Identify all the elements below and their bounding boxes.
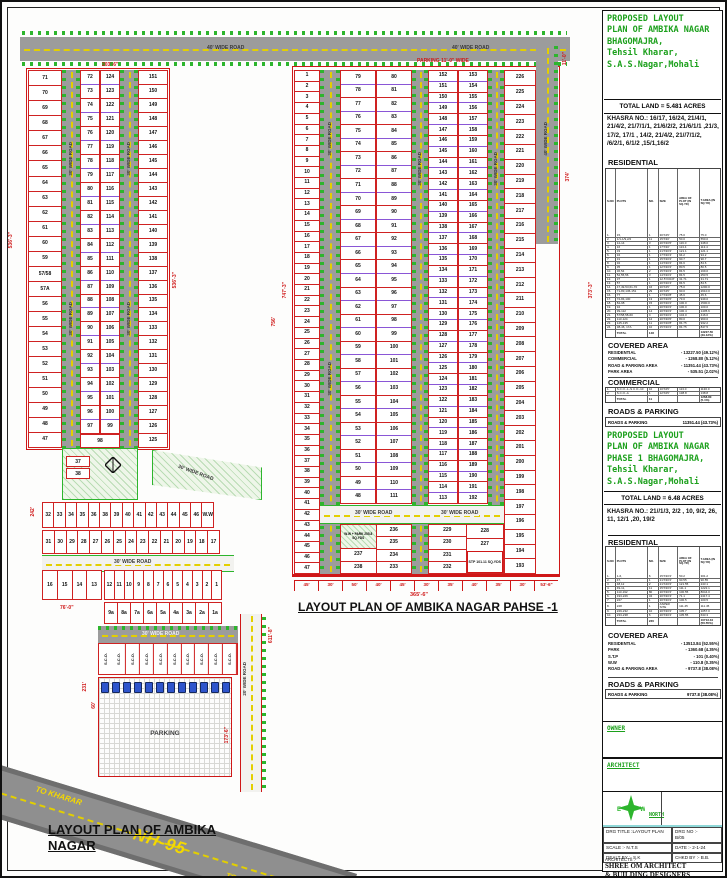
- plot-cell: 70: [29, 85, 61, 100]
- plot-cell: 214: [505, 248, 535, 263]
- plot-cell: 39: [295, 477, 319, 488]
- plot-cell: 147: [429, 124, 457, 135]
- plot-cell: 232: [429, 561, 466, 573]
- plot-cell: 28: [295, 359, 319, 370]
- phase1-bottom-line: [292, 574, 560, 577]
- plot-cell: 50: [29, 387, 61, 402]
- car-icon: [156, 682, 164, 693]
- tree-row: [488, 70, 492, 574]
- plot-cell: 187: [459, 438, 487, 449]
- plot-cell: 130: [139, 363, 167, 377]
- plot-cell: 103: [377, 381, 411, 395]
- plot-cell: 208: [505, 336, 535, 351]
- plot-cell: 136: [139, 280, 167, 294]
- tick-label: 40': [366, 581, 390, 591]
- plot-cell: 118: [429, 438, 457, 449]
- plot-cell: 196: [505, 514, 535, 529]
- dim-374: 374': [565, 172, 571, 182]
- plot-cell: 162: [459, 167, 487, 178]
- plot-cell: 98: [81, 435, 119, 447]
- dim-11: 11'-0": [562, 52, 568, 65]
- road-centerline: [420, 72, 422, 572]
- plot-cell: 63: [341, 287, 375, 301]
- plot-cell: 140: [429, 200, 457, 211]
- plot-cell: 17: [207, 531, 219, 553]
- plot-cell: 48: [29, 417, 61, 432]
- plot-cell: 3a: [182, 603, 195, 623]
- plot-row-17-31: 313029282726252423222120191817: [42, 530, 220, 554]
- plot-cell: 218: [505, 188, 535, 203]
- plot-cell: 71: [341, 178, 375, 192]
- plot-cell: 145: [429, 146, 457, 157]
- plot-cell: 122: [101, 98, 119, 112]
- plot-cell: 220: [505, 159, 535, 174]
- plot-cell: 34: [295, 423, 319, 434]
- road-label-40: 40' WIDE ROAD: [543, 122, 548, 156]
- plot-cell: 114: [429, 481, 457, 492]
- table-total-row: TOTAL111268.80 (5.1%): [606, 395, 720, 402]
- plot-cell: 5: [295, 113, 319, 124]
- plot-cell: 1: [295, 71, 319, 81]
- plot-cell: 83: [377, 111, 411, 125]
- plot-cell: 163: [459, 178, 487, 189]
- car-icon: [112, 682, 120, 693]
- plot-cell: 91: [81, 335, 99, 349]
- plot-cell: 236: [377, 525, 412, 536]
- plot-cell: 16: [43, 571, 57, 599]
- plot-cell: 72: [341, 165, 375, 179]
- plot-cell: 186: [459, 427, 487, 438]
- plot-cell: 123: [429, 384, 457, 395]
- plot-cell: 81: [377, 84, 411, 98]
- sco-cell: S.C.O.: [140, 644, 154, 674]
- plot-cell: 71: [29, 71, 61, 85]
- plot-cell: 124: [429, 373, 457, 384]
- dim-173: 173'-6": [224, 727, 230, 743]
- tick-label: 50': [342, 581, 366, 591]
- plot-cell: 57/58: [29, 266, 61, 281]
- car-icon: [189, 682, 197, 693]
- plot-cell: 137: [429, 232, 457, 243]
- project-title-1: PROPOSED LAYOUT PLAN OF AMBIKA NAGAR BHA…: [607, 14, 721, 71]
- plot-strip-col1: 7170696867666564636261605957/5857A565554…: [28, 70, 62, 448]
- plot-cell: 99: [377, 327, 411, 341]
- commercial-heading: COMMERCIAL: [608, 377, 718, 387]
- plot-cell: 49: [341, 476, 375, 490]
- plot-cell: 54: [341, 408, 375, 422]
- plot-cell: 90: [377, 205, 411, 219]
- plot-cell: 184: [459, 406, 487, 417]
- plot-cell: 18: [295, 252, 319, 263]
- plot-cell: 13: [295, 198, 319, 209]
- plot-cell: 148: [429, 113, 457, 124]
- plot-cell: 139: [429, 211, 457, 222]
- plot-cell: 100: [377, 341, 411, 355]
- plot-cell: 132: [139, 335, 167, 349]
- tree-row: [22, 31, 567, 35]
- plot-cell: 6: [295, 124, 319, 135]
- road-label-40: 40' WIDE ROAD: [452, 45, 489, 51]
- plot-cell: 174: [459, 297, 487, 308]
- tick-label: 40': [462, 581, 486, 591]
- plot-cell: 45: [295, 541, 319, 552]
- residential-table-2: S.NOPLOTSNO.SIZEAREA OF PLOT (IN SQ.YD)T…: [605, 546, 721, 626]
- plot-cell: 129: [429, 319, 457, 330]
- plot-cell: 115: [101, 196, 119, 210]
- drg-no: DRG NO :- B/05: [672, 827, 722, 843]
- subblock-right-col2: 228 227 STP 101.11 SQ.YDS: [467, 525, 504, 573]
- plot-cell: 55: [29, 311, 61, 326]
- plot-cell: 23: [136, 531, 148, 553]
- plot-cell: 203: [505, 410, 535, 425]
- plot-cell: 86: [81, 266, 99, 280]
- dim-231: 231': [82, 682, 88, 692]
- plot-cell: 4: [295, 102, 319, 113]
- tree-row: [320, 70, 324, 574]
- tick-label: 30': [510, 581, 534, 591]
- plot-cell: 158: [459, 124, 487, 135]
- plot-cell: 79: [81, 168, 99, 182]
- plot-cell: 73: [81, 84, 99, 98]
- plot-cell: 180: [459, 362, 487, 373]
- plot-cell: 229: [429, 525, 466, 536]
- tick-label: 35': [438, 581, 462, 591]
- park-plot-37: 37: [66, 456, 90, 467]
- plot-cell: 128: [139, 391, 167, 405]
- plot-cell: 127: [429, 341, 457, 352]
- roads-parking-row-2: ROADS & PARKING 9737.8 (38.08%): [605, 689, 721, 699]
- plot-cell: 170: [459, 254, 487, 265]
- dim-76: 76'-0": [60, 605, 74, 611]
- sco-cell: S.C.O.: [154, 644, 168, 674]
- plot-cell: 34: [65, 503, 76, 527]
- plot-cell: 231: [429, 549, 466, 561]
- tree-row: [62, 70, 66, 448]
- plot-cell: 24: [295, 316, 319, 327]
- plot-cell: 36: [88, 503, 99, 527]
- plot-strip-b-left: 7978777675747372717069686766656463626160…: [340, 70, 376, 504]
- plot-cell: 10: [295, 166, 319, 177]
- road-label-30: 30' WIDE ROAD: [354, 510, 393, 516]
- scale: SCALE :- N.T.S: [603, 843, 672, 853]
- plot-cell: 115: [429, 471, 457, 482]
- plot-cell: 105: [377, 408, 411, 422]
- roads-parking-label: ROADS & PARKING: [608, 420, 647, 425]
- plot-cell: 141: [429, 189, 457, 200]
- plot-cell: 107: [101, 307, 119, 321]
- plot-cell: 29: [66, 531, 78, 553]
- subblock-left: W.W + PARK 255.8 SQ.YDS 237 238 23623523…: [340, 524, 412, 574]
- plot-cell: 110: [101, 266, 119, 280]
- plot-cell: 11: [295, 177, 319, 188]
- plot-cell: 65: [341, 259, 375, 273]
- plot-cell: 151: [139, 71, 167, 84]
- road-label-30: 30' WIDE ROAD: [493, 152, 498, 186]
- road-label-30: 30' WIDE ROAD: [126, 302, 131, 336]
- plot-cell: 87: [377, 165, 411, 179]
- plot-cell: 78: [81, 154, 99, 168]
- plot-cell: 132: [429, 287, 457, 298]
- plot-cell: 112: [101, 238, 119, 252]
- plot-cell: 121: [429, 406, 457, 417]
- table-row: 8.2281 ASPER SITE111.45111.45: [606, 602, 720, 609]
- plot-cell: 147: [139, 126, 167, 140]
- plot-cell: 56: [29, 296, 61, 311]
- plot-cell: 93: [377, 246, 411, 260]
- khasra-1: KHASRA NO.: 16/17, 16/24, 21/4/1, 21/4/2…: [607, 115, 719, 148]
- plot-cell: 80: [377, 71, 411, 84]
- plot-cell: 30: [295, 380, 319, 391]
- roads-parking-label: ROADS & PARKING: [608, 692, 647, 697]
- plot-cell: 53: [341, 422, 375, 436]
- compass-box: E W NORTH: [603, 791, 722, 825]
- plot-cell: 157: [459, 113, 487, 124]
- plot-cell: 225: [505, 85, 535, 100]
- plot-cell: 75: [81, 112, 99, 126]
- plot-cell: 26: [295, 338, 319, 349]
- plot-cell: 113: [429, 492, 457, 503]
- plot-cell: 63: [29, 191, 61, 206]
- plot-cell: 224: [505, 100, 535, 115]
- plot-cell: 120: [429, 417, 457, 428]
- plot-strip-col2-right: 1241231221211201191181171161151141131121…: [100, 70, 120, 434]
- plot-cell: 2: [295, 81, 319, 92]
- plot-cell: 222: [505, 129, 535, 144]
- plot-cell: 143: [429, 167, 457, 178]
- plot-cell: 114: [101, 210, 119, 224]
- compass-icon: E W: [617, 794, 645, 822]
- plot-cell: 150: [139, 84, 167, 98]
- plot-cell: 88: [81, 294, 99, 308]
- tick-label: 35': [486, 581, 510, 591]
- tree-row: [412, 70, 416, 574]
- plot-cell: 137: [139, 266, 167, 280]
- car-icon: [211, 682, 219, 693]
- plot-cell: 95: [377, 273, 411, 287]
- tree-row: [554, 46, 558, 244]
- plot-cell: 37: [67, 457, 89, 466]
- road-label-20: 20' WIDE ROAD: [242, 662, 247, 696]
- plot-cell: 117: [429, 449, 457, 460]
- plot-cell: 96: [377, 287, 411, 301]
- parked-cars: [99, 678, 231, 694]
- plot-cell: 55: [341, 395, 375, 409]
- plot-strip-d: 2262252242232222212202192182172162152142…: [504, 70, 536, 574]
- plot-cell: 93: [81, 363, 99, 377]
- plot-cell: 230: [429, 536, 466, 548]
- plot-cell: 200: [505, 455, 535, 470]
- plot-cell: 5a: [156, 603, 169, 623]
- plot-cell: 40: [295, 487, 319, 498]
- plot-cell: 90: [81, 321, 99, 335]
- plot-cell: 141: [139, 210, 167, 224]
- plot-cell: 111: [101, 252, 119, 266]
- plot-cell: 235: [377, 536, 412, 548]
- plot-cell: 136: [429, 243, 457, 254]
- plot-cell: 167: [459, 222, 487, 233]
- plot-cell: 237: [341, 548, 376, 561]
- park-plot-38: 38: [66, 468, 90, 479]
- car-icon: [134, 682, 142, 693]
- plot-cell: 108: [377, 449, 411, 463]
- plot-cell: 47: [29, 432, 61, 447]
- plot-cell: 41: [133, 503, 144, 527]
- plot-cell: 8: [143, 571, 153, 599]
- tick-label: 45': [294, 581, 318, 591]
- plot-cell: 22: [148, 531, 160, 553]
- plot-cell: 27: [89, 531, 101, 553]
- ww-park-cell: W.W + PARK 255.8 SQ.YDS: [341, 525, 376, 548]
- plot-cell: 20: [172, 531, 184, 553]
- plot-cell: 194: [505, 544, 535, 559]
- owner-label: OWNER: [607, 725, 625, 732]
- plot-cell: 18: [195, 531, 207, 553]
- plot-cell: 109: [101, 280, 119, 294]
- plot-cell: 78: [341, 84, 375, 98]
- plot-cell: 182: [459, 384, 487, 395]
- plot-cell: 81: [81, 196, 99, 210]
- covered-area-list-1: RESIDENTIAL- 13227.50 (49.12%)COMMERCIAL…: [608, 350, 719, 375]
- svg-text:W: W: [640, 807, 645, 813]
- plot-cell: 3: [295, 91, 319, 102]
- plot-strip-c-right: 1531541551561571581591601611621631641651…: [458, 70, 488, 504]
- car-icon: [101, 682, 109, 693]
- plot-cell: 146: [139, 140, 167, 154]
- parking-area: PARKING: [98, 677, 232, 777]
- plot-cell: 159: [459, 135, 487, 146]
- tree-row: [120, 70, 124, 448]
- plot-cell: 199: [505, 470, 535, 485]
- plot-cell: 66: [341, 246, 375, 260]
- plot-cell: 125: [429, 362, 457, 373]
- plot-cell: 15: [57, 571, 72, 599]
- plot-cell: 35: [295, 434, 319, 445]
- plot-cell: 151: [429, 81, 457, 92]
- plot-cell: 135: [429, 254, 457, 265]
- plot-cell: 60: [341, 327, 375, 341]
- plot-cell: W.W: [201, 503, 213, 527]
- plot-strip-col3: 1511501491481471461451441431421411401391…: [138, 70, 168, 448]
- plot-cell: 119: [429, 427, 457, 438]
- plot-cell: 172: [459, 276, 487, 287]
- road-centerline: [496, 72, 498, 572]
- plot-cell: 8: [295, 145, 319, 156]
- road-label-30: 30' WIDE ROAD: [327, 122, 332, 156]
- plot-cell: 37: [295, 455, 319, 466]
- plot-cell: 165: [459, 200, 487, 211]
- plot-cell: 188: [459, 449, 487, 460]
- plot-cell: 233: [377, 561, 412, 573]
- plot-cell: 15: [295, 220, 319, 231]
- plot-cell: 6a: [143, 603, 156, 623]
- plot-cell: 85: [377, 138, 411, 152]
- plot-cell: 143: [139, 182, 167, 196]
- roads-parking-heading-1: ROADS & PARKING: [608, 407, 679, 416]
- dim-60: 60': [91, 702, 97, 709]
- plot-cell: 131: [139, 349, 167, 363]
- plot-cell: 108: [101, 294, 119, 308]
- plot-strip-a: 1234567891011121314151617181920212223242…: [294, 70, 320, 574]
- plot-cell: 27: [295, 348, 319, 359]
- road-label-30: 30' WIDE ROAD: [112, 559, 153, 565]
- covered-area-list-2: RESIDENTIAL- 13513.84 (52.55%)PARK- 1360…: [608, 641, 719, 672]
- sco-cell: S.C.O.: [195, 644, 209, 674]
- car-icon: [200, 682, 208, 693]
- plot-cell: 12: [295, 188, 319, 199]
- plot-cell: 9a: [105, 603, 117, 623]
- plot-cell: 211: [505, 292, 535, 307]
- parking-label: PARKING: [99, 730, 231, 737]
- plot-cell: 185: [459, 417, 487, 428]
- plot-cell: 62: [341, 300, 375, 314]
- plot-cell: 21: [160, 531, 172, 553]
- road-label-30: 30' WIDE ROAD: [68, 142, 73, 176]
- plot-cell: 7a: [130, 603, 143, 623]
- plot-cell: 69: [29, 100, 61, 115]
- sco-cell: S.C.O.: [223, 644, 237, 674]
- plot-cell: 79: [341, 71, 375, 84]
- commercial-table: 1.S.C.O.-1–S.C.O.-1010 10'X25'113.01130.…: [605, 387, 721, 403]
- plot-cell: 99: [101, 419, 119, 433]
- plot-cell: 131: [429, 297, 457, 308]
- plot-cell: 13: [86, 571, 101, 599]
- road-centerline: [251, 616, 253, 790]
- plot-cell: 110: [377, 476, 411, 490]
- plot-cell: 135: [139, 294, 167, 308]
- plot-cell: 50: [341, 462, 375, 476]
- plot-cell: 177: [459, 330, 487, 341]
- plot-cell: 94: [377, 259, 411, 273]
- plot-cell: 30: [54, 531, 66, 553]
- plot-cell: 168: [459, 232, 487, 243]
- main-title-left: LAYOUT PLAN OF AMBIKA NAGAR: [48, 822, 216, 855]
- plot-cell: 74: [341, 138, 375, 152]
- plot-cell: 130: [429, 308, 457, 319]
- plot-cell: 76: [81, 126, 99, 140]
- plot-cell: 76: [341, 111, 375, 125]
- plot-cell: 106: [101, 321, 119, 335]
- plot-cell: 2a: [195, 603, 208, 623]
- plot-cell: 58: [341, 354, 375, 368]
- sco-cell: S.C.O.: [168, 644, 182, 674]
- plot-cell: 1a: [208, 603, 221, 623]
- plot-cell: 54: [29, 326, 61, 341]
- dim-536: 536'-3": [8, 232, 14, 248]
- plot-cell: 195: [505, 529, 535, 544]
- plot-cell: 138: [139, 252, 167, 266]
- road-label-30: 30' WIDE ROAD: [142, 631, 179, 637]
- plot-cell: 7: [295, 134, 319, 145]
- plot-cell: 53: [29, 341, 61, 356]
- plot-cell: 51: [29, 372, 61, 387]
- plot-cell: 98: [377, 314, 411, 328]
- car-icon: [145, 682, 153, 693]
- tick-label: 30': [318, 581, 342, 591]
- plot-cell: 57A: [29, 281, 61, 296]
- plot-cell: 77: [81, 140, 99, 154]
- plot-cell: 138: [429, 222, 457, 233]
- plot-cell: 9: [133, 571, 143, 599]
- to-kharar-label: TO KHARAR: [34, 785, 82, 808]
- road-20: [240, 614, 262, 792]
- plot-cell: 7: [153, 571, 163, 599]
- plot-cell: 4a: [169, 603, 182, 623]
- plot-cell: 91: [377, 219, 411, 233]
- table-rows: 1.S.C.O.-1–S.C.O.-1010 10'X25'113.01130.…: [606, 388, 720, 395]
- dim-756: 756': [271, 317, 277, 327]
- plot-cell: 198: [505, 484, 535, 499]
- tick-label: 45': [390, 581, 414, 591]
